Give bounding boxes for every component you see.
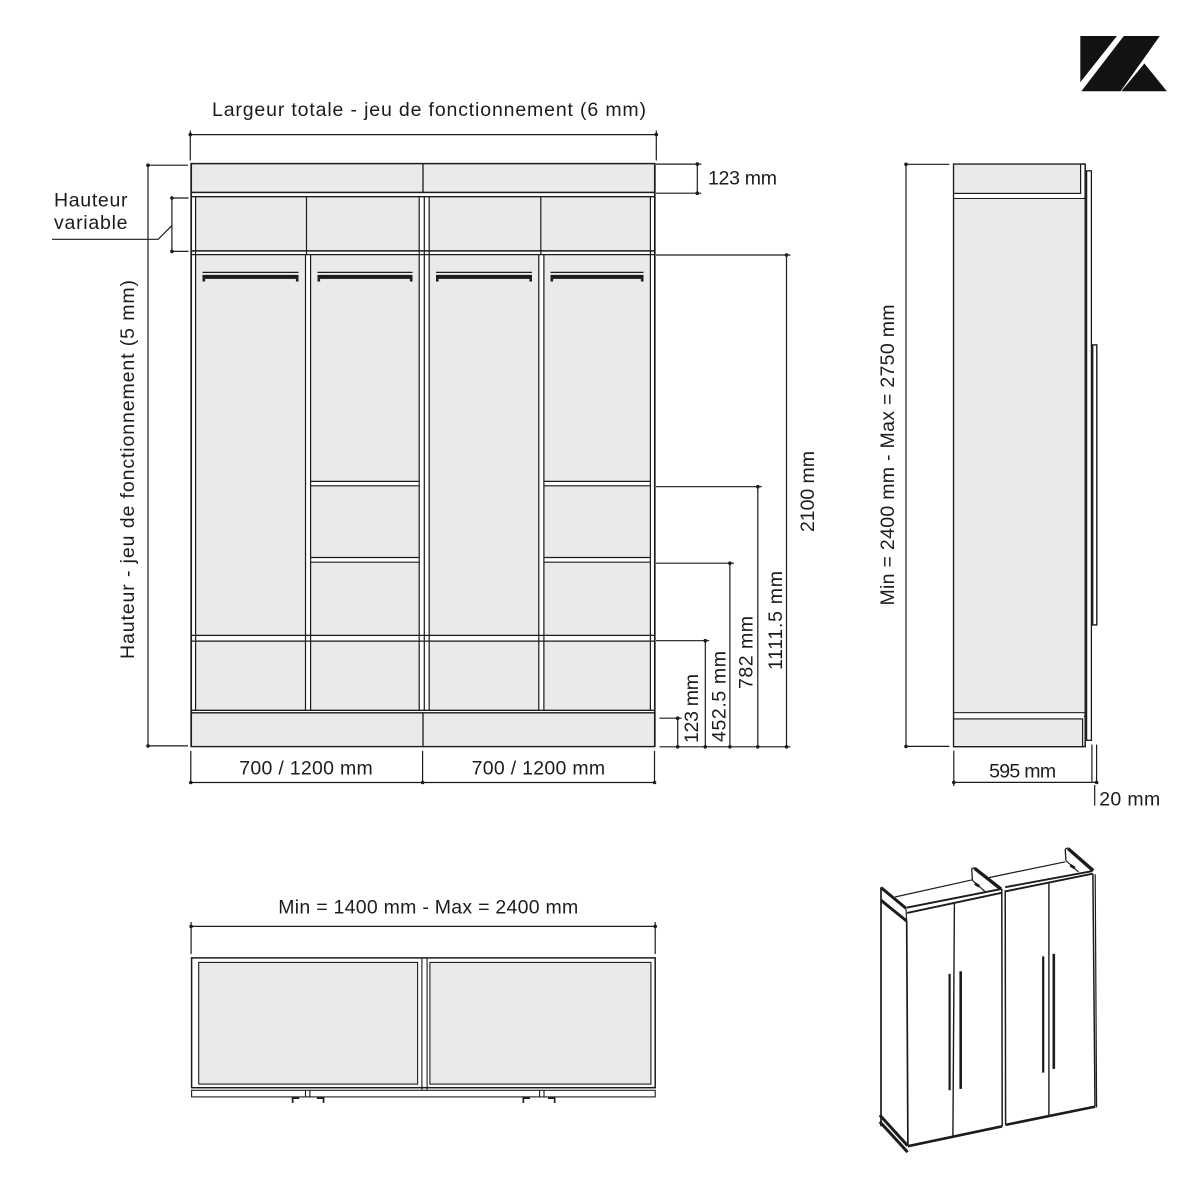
svg-text:Min = 1400 mm - Max = 2400 mm: Min = 1400 mm - Max = 2400 mm xyxy=(278,897,578,919)
svg-text:Hauteur - jeu de fonctionnemen: Hauteur - jeu de fonctionnement (5 mm) xyxy=(117,280,139,659)
svg-text:Hauteur: Hauteur xyxy=(54,190,128,212)
svg-text:20 mm: 20 mm xyxy=(1099,789,1160,811)
svg-text:2100 mm: 2100 mm xyxy=(797,451,819,532)
svg-text:123 mm: 123 mm xyxy=(708,168,777,190)
svg-text:782 mm: 782 mm xyxy=(736,616,758,689)
svg-text:700 / 1200 mm: 700 / 1200 mm xyxy=(472,758,606,780)
svg-text:452.5 mm: 452.5 mm xyxy=(709,651,731,742)
svg-text:700 / 1200 mm: 700 / 1200 mm xyxy=(239,758,373,780)
svg-text:Min = 2400 mm - Max = 2750 mm: Min = 2400 mm - Max = 2750 mm xyxy=(877,305,899,606)
svg-text:Largeur totale - jeu de foncti: Largeur totale - jeu de fonctionnement (… xyxy=(212,99,646,121)
svg-text:1111.5 mm: 1111.5 mm xyxy=(765,571,787,670)
svg-text:123 mm: 123 mm xyxy=(681,674,703,743)
svg-text:595 mm: 595 mm xyxy=(989,761,1056,783)
svg-text:variable: variable xyxy=(54,212,128,234)
